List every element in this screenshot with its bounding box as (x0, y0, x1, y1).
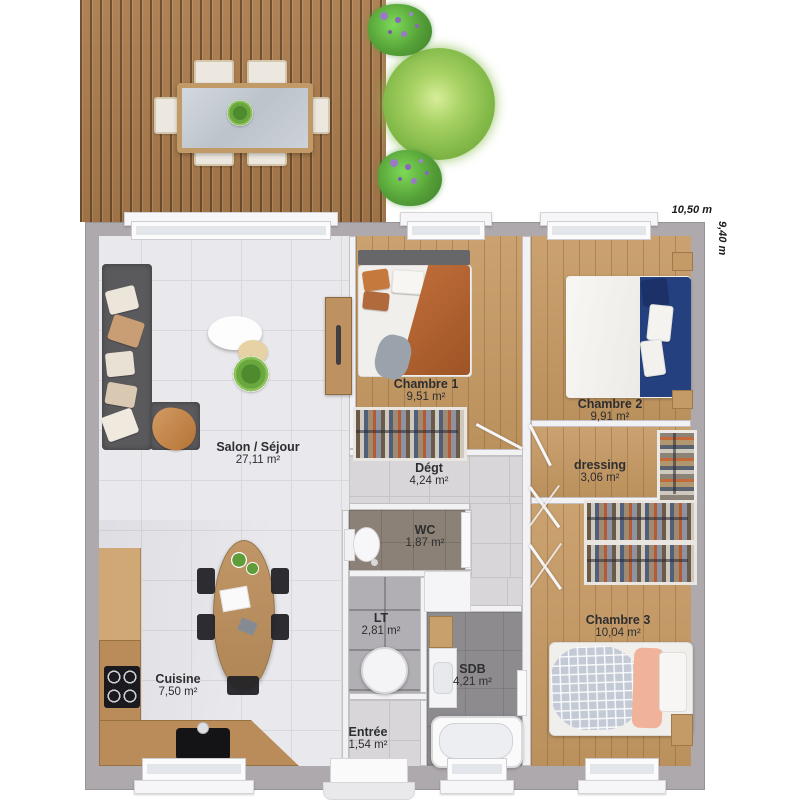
dining-chair (197, 568, 215, 594)
window-sill (578, 780, 666, 794)
dimension-width-label: 10,50 m (640, 204, 712, 216)
chambre3-window (585, 758, 659, 782)
lavender-bush (368, 4, 432, 56)
wardrobe-rail (587, 559, 688, 562)
dressing-rack (584, 542, 697, 585)
room-area: 1,87 m² (375, 537, 475, 550)
sdb-window (447, 758, 507, 782)
room-name: SDB (420, 662, 525, 676)
floor-plan-canvas: 10,50 m 9,40 m Salon / Séjour 27,11 m² C… (0, 0, 800, 800)
sdb-wood-shelf (429, 616, 453, 648)
dining-chair (227, 676, 259, 695)
dining-chair (271, 568, 289, 594)
bed1-headboard (358, 250, 470, 265)
bed2-duvet-white (566, 277, 644, 397)
room-label-chambre3: Chambre 3 10,04 m² (558, 613, 678, 641)
window-sill (134, 780, 254, 794)
window-glass (552, 226, 646, 235)
room-area: 7,50 m² (128, 686, 228, 699)
wardrobe-rail (587, 517, 688, 520)
entrance-step (323, 782, 415, 800)
dinner-plate (246, 562, 259, 575)
kitchen-upper-cabinet (99, 548, 141, 640)
room-label-dressing: dressing 3,06 m² (545, 458, 655, 486)
room-name: dressing (545, 458, 655, 472)
wardrobe-rail (673, 433, 676, 494)
room-label-sdb: SDB 4,21 m² (420, 662, 525, 690)
window-glass (136, 226, 326, 235)
nightstand (672, 252, 693, 271)
room-name: Chambre 2 (550, 397, 670, 411)
chambre1-window (407, 221, 485, 240)
cuisine-window (142, 758, 246, 782)
floor-drain (371, 559, 378, 566)
room-label-cuisine: Cuisine 7,50 m² (128, 672, 228, 700)
room-name: Dégt (374, 461, 484, 475)
kitchen-faucet (197, 722, 209, 734)
room-area: 4,24 m² (374, 475, 484, 488)
room-area: 2,81 m² (341, 625, 421, 638)
room-label-wc: WC 1,87 m² (375, 523, 475, 551)
bed1-pillow (391, 269, 425, 295)
room-label-degt: Dégt 4,24 m² (374, 461, 484, 489)
water-heater (424, 571, 471, 612)
nightstand (672, 390, 693, 409)
tree (383, 48, 495, 160)
bathtub-basin (439, 723, 513, 759)
room-name: Entrée (328, 725, 408, 739)
window-glass (452, 764, 502, 774)
room-area: 9,51 m² (366, 391, 486, 404)
sideboard-handle (336, 325, 341, 365)
room-label-chambre1: Chambre 1 9,51 m² (366, 377, 486, 405)
room-area: 27,11 m² (188, 454, 328, 467)
room-area: 1,54 m² (328, 739, 408, 752)
table-plant (227, 100, 253, 126)
room-name: Chambre 3 (558, 613, 678, 627)
room-name: Chambre 1 (366, 377, 486, 391)
wall-lt-entree (349, 693, 427, 700)
window-glass (590, 764, 654, 774)
room-label-chambre2: Chambre 2 9,91 m² (550, 397, 670, 425)
bed2-pillow-navy (641, 278, 670, 307)
dimension-height-label: 9,40 m (716, 221, 728, 255)
room-area: 10,04 m² (558, 627, 678, 640)
room-label-lt: LT 2,81 m² (341, 611, 421, 639)
sofa-cushion (105, 351, 135, 378)
room-name: Cuisine (128, 672, 228, 686)
dining-chair (271, 614, 289, 640)
chambre1-wardrobe (353, 407, 467, 461)
wardrobe-rail (356, 430, 458, 433)
entrance-door (330, 758, 408, 784)
room-name: LT (341, 611, 421, 625)
bed3-checked-duvet (550, 644, 643, 731)
window-glass (412, 226, 480, 235)
room-area: 3,06 m² (545, 472, 655, 485)
window-sill (440, 780, 514, 794)
room-label-salon: Salon / Séjour 27,11 m² (188, 440, 328, 468)
dressing-rack (584, 500, 697, 543)
window-glass (147, 764, 241, 774)
lavender-bush (378, 150, 442, 206)
room-area: 9,91 m² (550, 411, 670, 424)
sideboard (325, 297, 352, 395)
salon-plant (233, 356, 269, 392)
washing-machine (361, 647, 408, 694)
room-name: WC (375, 523, 475, 537)
room-name: Salon / Séjour (188, 440, 328, 454)
salon-bay-window (131, 221, 331, 240)
chambre2-window (547, 221, 651, 240)
wall-entree-right (420, 700, 427, 766)
dining-chair (197, 614, 215, 640)
dinner-plate (231, 552, 247, 568)
dressing-wardrobe-vertical (657, 430, 697, 503)
bed1-pillow (362, 268, 391, 291)
bed3-pillow (659, 652, 687, 712)
wall-degt-wc (349, 503, 470, 510)
room-area: 4,21 m² (420, 676, 525, 689)
bed2-pillow-white (646, 304, 674, 342)
room-label-entree: Entrée 1,54 m² (328, 725, 408, 753)
bed1-pillow (362, 291, 390, 312)
nightstand (671, 714, 693, 746)
